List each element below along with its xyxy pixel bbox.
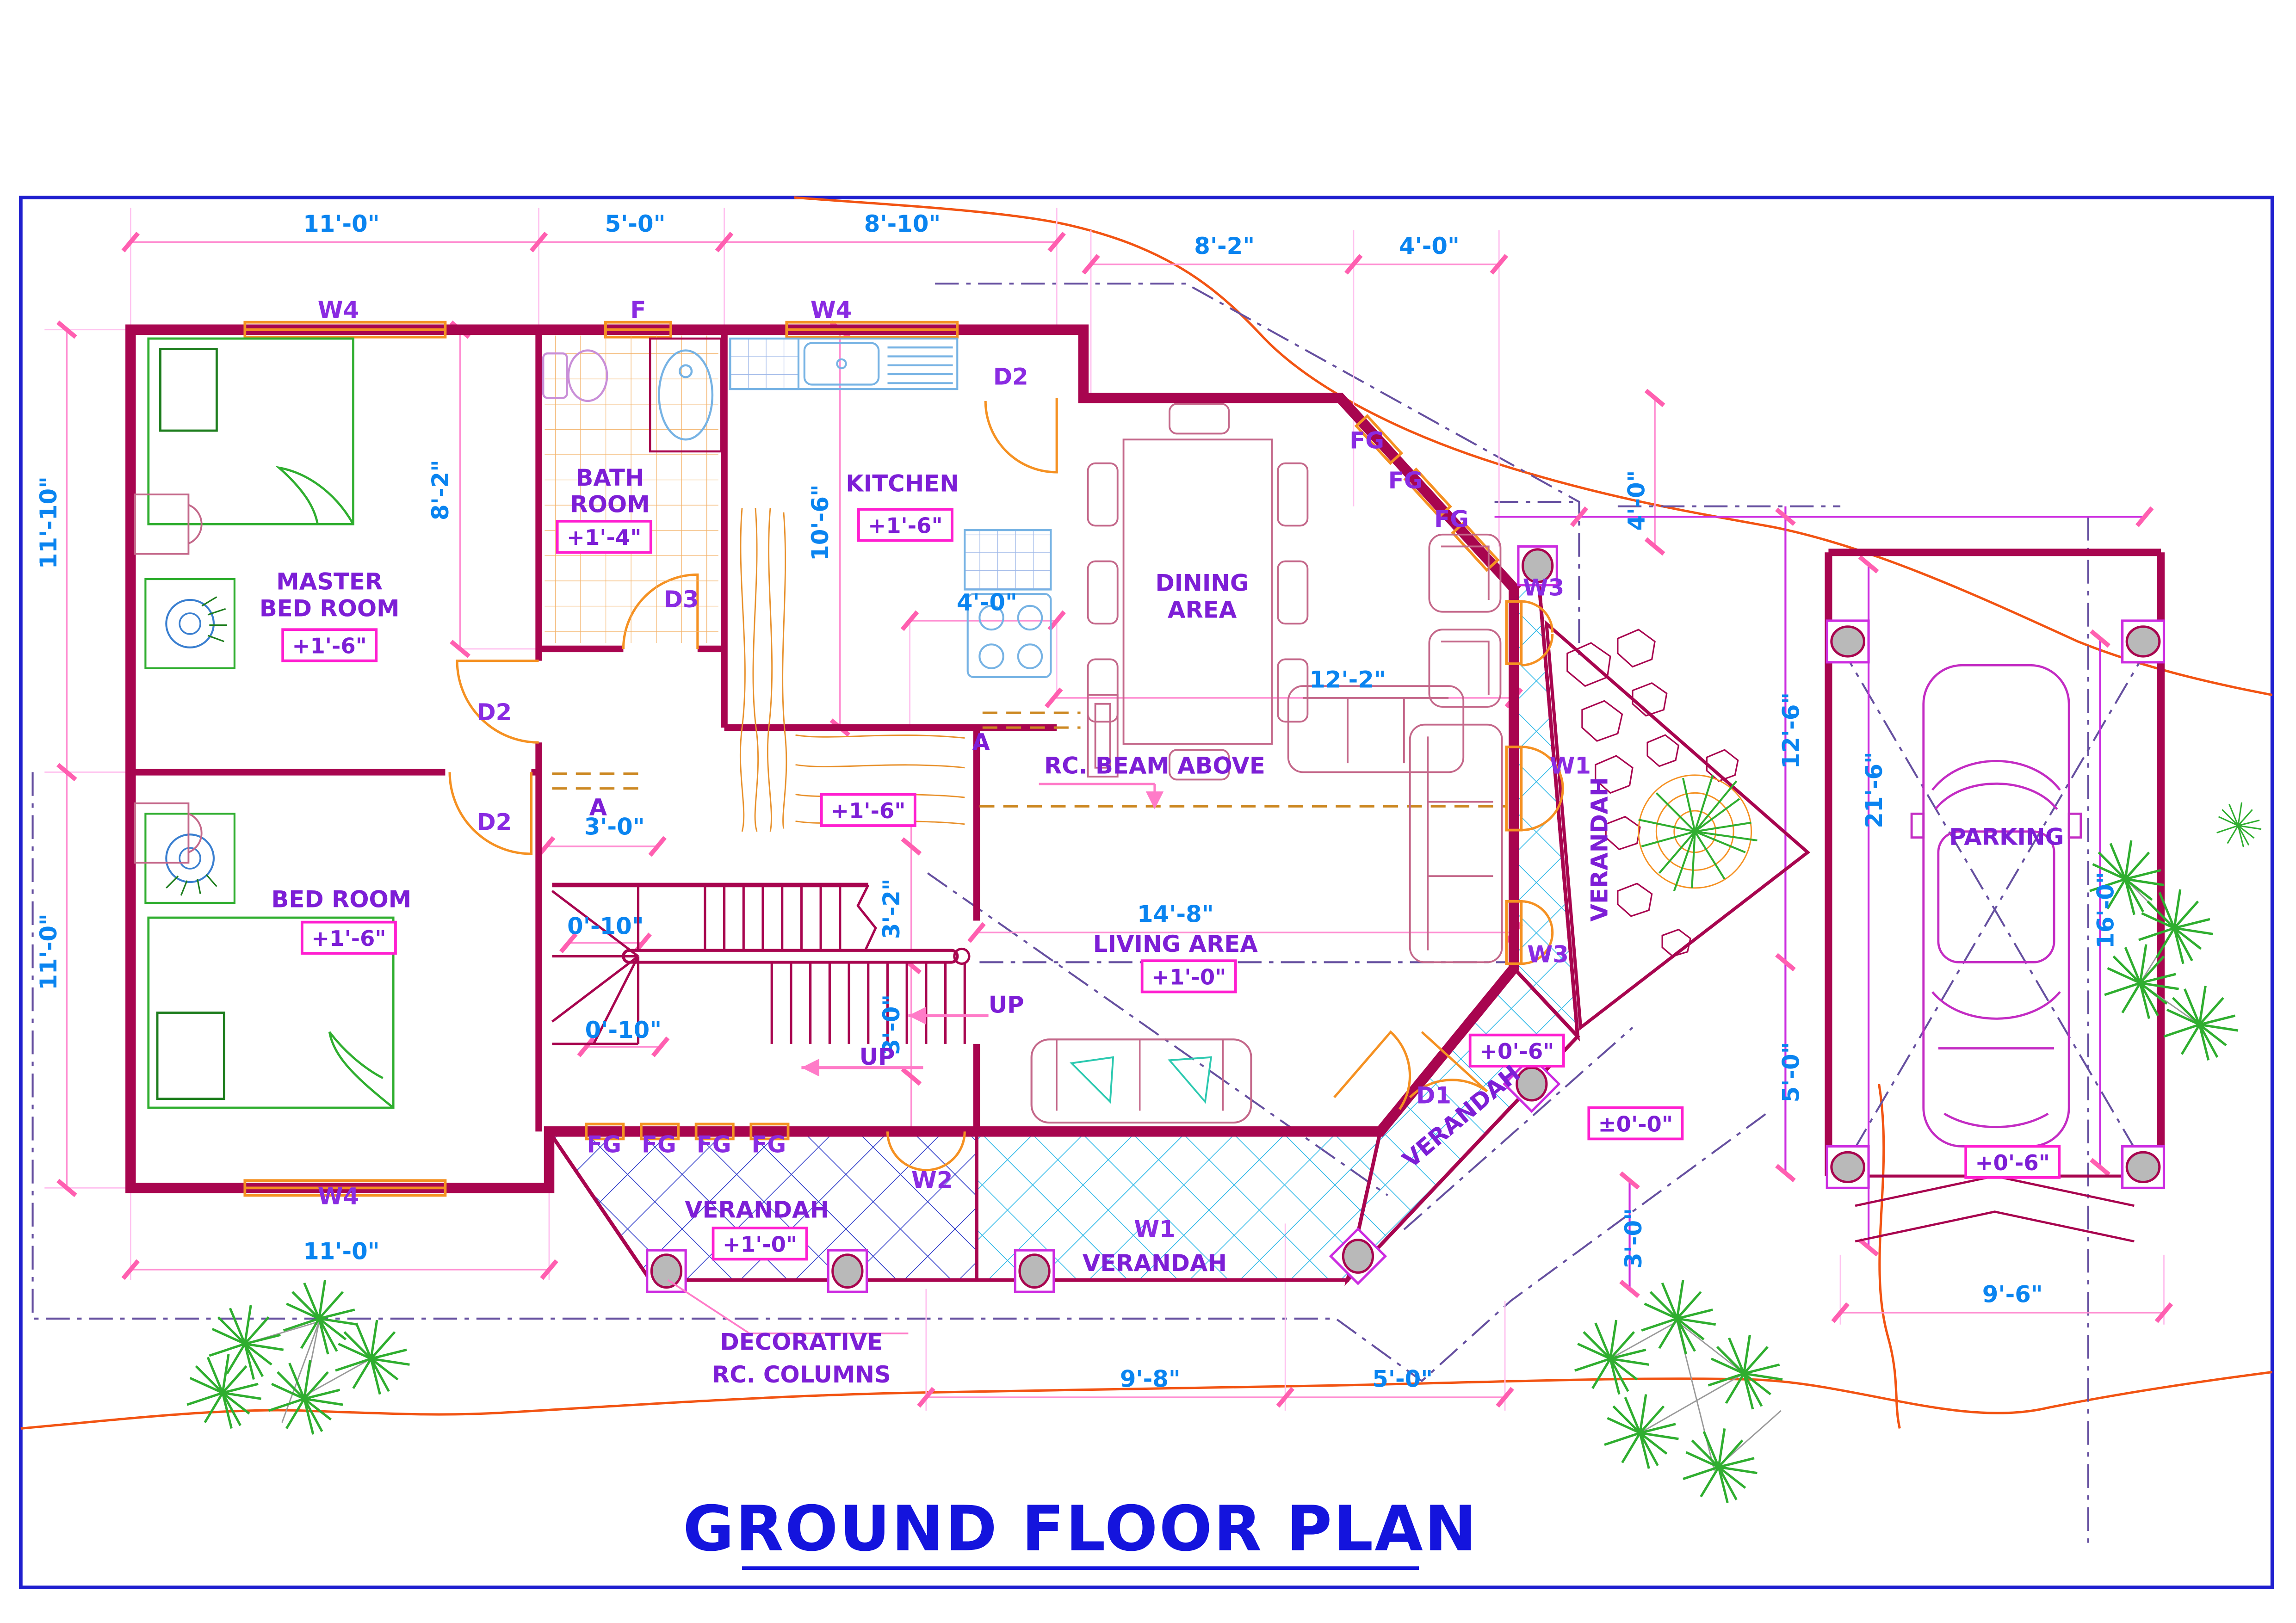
dimension-label: 3'-0"	[1620, 1208, 1647, 1269]
dimension-label: 11'-0"	[303, 210, 380, 237]
verandah-floors	[549, 567, 1578, 1280]
level-value: +1'-6"	[311, 926, 386, 951]
dimension-label: 11'-10"	[35, 476, 62, 569]
level-value: +1'-6"	[292, 634, 366, 659]
kitchen-counter	[730, 339, 957, 389]
room-label: PARKING	[1949, 824, 2064, 851]
opening-tag: W3	[1527, 941, 1568, 968]
room-label: LIVING AREA	[1093, 931, 1258, 957]
level-value: ±0'-0"	[1598, 1111, 1673, 1136]
dimension-label: 5'-0"	[1777, 1042, 1804, 1102]
dimension-label: 8'-2"	[427, 460, 454, 520]
level-value: +1'-0"	[1151, 964, 1226, 989]
room-label: VERANDAH	[1586, 777, 1613, 921]
dimension-label: 5'-0"	[605, 210, 666, 237]
room-label: BED ROOM	[272, 886, 412, 913]
opening-tag: FG	[587, 1131, 621, 1158]
opening-tag: W4	[318, 1183, 359, 1210]
dimension-label: 4'-0"	[1623, 470, 1650, 531]
dimension-label: 9'-8"	[1120, 1366, 1181, 1393]
opening-tag: FG	[1434, 506, 1469, 533]
room-label: VERANDAH	[685, 1197, 829, 1223]
master-bed	[149, 339, 353, 524]
dimension-label: 0'-10"	[567, 913, 644, 939]
opening-tag: FG	[697, 1131, 731, 1158]
dimension-label: 21'-6"	[1861, 752, 1888, 828]
room-label: RC. BEAM ABOVE	[1044, 753, 1265, 779]
opening-tag: FG	[642, 1131, 676, 1158]
opening-tag: D2	[993, 363, 1028, 390]
ceiling-fans	[145, 579, 234, 903]
wood-texture	[740, 508, 965, 832]
opening-tag: W4	[811, 296, 852, 323]
dimension-label: 0'-10"	[585, 1017, 662, 1043]
opening-tag: FG	[1388, 467, 1423, 494]
room-label: MASTER	[276, 568, 383, 595]
opening-tag: D3	[664, 586, 699, 613]
level-value: +1'-4"	[567, 525, 641, 550]
level-value: +0'-6"	[1975, 1150, 2050, 1175]
room-label: VERANDAH	[1083, 1250, 1227, 1277]
opening-tag: W1	[1549, 753, 1590, 779]
level-value: +1'-0"	[723, 1232, 797, 1257]
dressers	[135, 494, 202, 863]
opening-tag: D2	[477, 809, 512, 836]
dimension-label: 4'-0"	[957, 589, 1017, 616]
opening-tag: FG	[1349, 427, 1384, 454]
level-value: +0'-6"	[1479, 1039, 1554, 1064]
room-label: BATH	[576, 464, 644, 491]
dimension-label: 8'-10"	[864, 210, 941, 237]
drawing-title: GROUND FLOOR PLAN	[683, 1493, 1478, 1568]
room-label: ROOM	[570, 491, 650, 518]
room-label: AREA	[1168, 597, 1237, 623]
dimension-label: 12'-2"	[1309, 666, 1386, 693]
room-label: RC. COLUMNS	[712, 1361, 891, 1388]
room-label: A	[589, 794, 607, 821]
opening-tag: D2	[477, 699, 512, 726]
room-label: DINING	[1155, 570, 1249, 597]
drawing-sheet: +1'-6"+1'-4"+1'-6"+1'-6"+1'-6"+1'-0"+1'-…	[0, 0, 2296, 1623]
dimension-label: 9'-6"	[1982, 1281, 2043, 1308]
dimension-label: 3'-2"	[878, 878, 905, 939]
room-label: KITCHEN	[846, 470, 959, 497]
dimension-label: 8'-2"	[1194, 233, 1255, 259]
opening-tag: W2	[911, 1166, 953, 1193]
dimension-label: 14'-8"	[1137, 901, 1214, 928]
room-label: A	[972, 728, 990, 755]
opening-tag: FG	[751, 1131, 786, 1158]
dimension-label: 4'-0"	[1399, 233, 1460, 259]
living-sofa	[1032, 1039, 1251, 1123]
room-label: UP	[989, 991, 1024, 1018]
opening-tag: D1	[1416, 1082, 1451, 1109]
page-title: GROUND FLOOR PLAN	[683, 1493, 1478, 1565]
opening-tag: F	[631, 296, 646, 323]
sitting-furniture	[1088, 535, 1502, 963]
floor-plan-svg: +1'-6"+1'-4"+1'-6"+1'-6"+1'-6"+1'-0"+1'-…	[0, 0, 2296, 1623]
room-label: UP	[860, 1043, 895, 1070]
room-label: BED ROOM	[260, 595, 400, 622]
opening-tag: W1	[1134, 1216, 1175, 1242]
level-value: +1'-6"	[831, 798, 905, 823]
opening-tag: W4	[318, 296, 359, 323]
dimension-label: 11'-0"	[35, 913, 62, 990]
dimension-label: 16'-0"	[2092, 872, 2119, 949]
dimension-label: 12'-6"	[1777, 692, 1804, 769]
dimension-label: 5'-0"	[1372, 1366, 1433, 1393]
opening-tag: W3	[1523, 574, 1564, 601]
dimension-label: 10'-6"	[807, 484, 834, 561]
room-label: DECORATIVE	[720, 1328, 883, 1355]
level-value: +1'-6"	[868, 513, 942, 538]
dimension-label: 11'-0"	[303, 1238, 380, 1265]
